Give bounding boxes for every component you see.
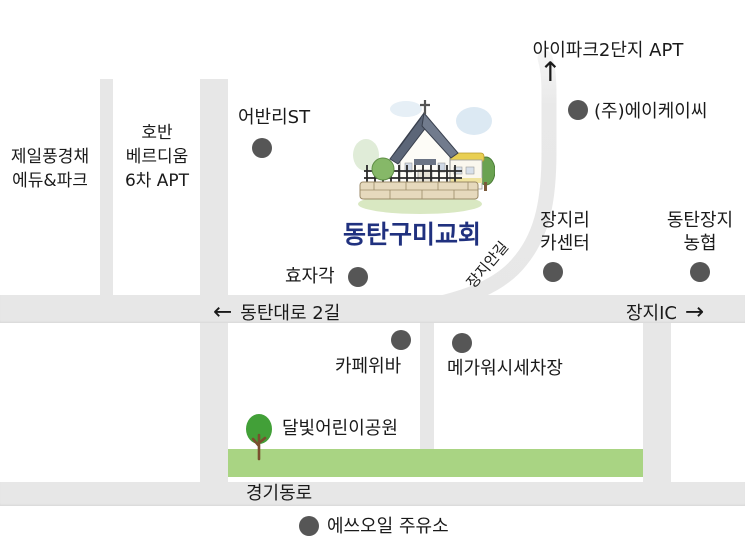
place-label-jeilpunggyeongchae: 제일풍경채 에듀&파크 bbox=[0, 145, 100, 193]
place-label-line: 카센터 bbox=[528, 232, 602, 255]
place-dot-dongtanjangji-nonghyup bbox=[690, 262, 710, 282]
place-label-dongtanjangji-nonghyup: 동탄장지 농협 bbox=[660, 209, 740, 255]
road-label-text: 장지IC bbox=[626, 299, 677, 325]
left-arrow-icon: ← bbox=[213, 303, 232, 321]
park-tree-icon bbox=[244, 413, 274, 461]
place-dot-soil-station bbox=[299, 516, 319, 536]
place-label-megawash: 메가워시세차장 bbox=[447, 358, 563, 380]
location-map: 제일풍경채 에듀&파크 호반 베르디움 6차 APT 어반리ST 아이파크2단지… bbox=[0, 0, 745, 548]
place-label-line: 장지리 bbox=[528, 209, 602, 232]
place-label-line: 호반 bbox=[112, 121, 202, 145]
place-label-moonlight-park: 달빛어린이공원 bbox=[282, 418, 398, 440]
place-label-line: 6차 APT bbox=[112, 169, 202, 193]
park-green-strip bbox=[228, 449, 643, 477]
place-dot-akc bbox=[568, 100, 588, 120]
right-arrow-icon: → bbox=[685, 303, 704, 321]
place-dot-cafe-wiba bbox=[391, 330, 411, 350]
place-dot-hyojagak bbox=[348, 267, 368, 287]
place-label-line: 베르디움 bbox=[112, 145, 202, 169]
place-label-akc: (주)에이케이씨 bbox=[594, 101, 707, 123]
place-label-line: 제일풍경채 bbox=[0, 145, 100, 169]
road-label-jangji-ic: 장지IC → bbox=[626, 299, 704, 325]
place-dot-urbanli-st bbox=[252, 138, 272, 158]
place-label-urbanli-st: 어반리ST bbox=[238, 107, 310, 129]
place-label-line: 농협 bbox=[660, 232, 740, 255]
road-label-gyeonggidongro: 경기동로 bbox=[246, 483, 312, 505]
up-arrow-icon: ↑ bbox=[539, 57, 562, 88]
place-dot-jangjiri-carcenter bbox=[543, 262, 563, 282]
road-label-dongtandaero: ← 동탄대로 2길 bbox=[213, 299, 340, 325]
place-label-line: 에듀&파크 bbox=[0, 169, 100, 193]
place-label-line: 동탄장지 bbox=[660, 209, 740, 232]
place-dot-megawash bbox=[452, 333, 472, 353]
place-label-hyojagak: 효자각 bbox=[285, 266, 335, 288]
church-illustration bbox=[350, 97, 495, 217]
church-name-label: 동탄구미교회 bbox=[337, 215, 487, 251]
place-label-cafe-wiba: 카페위바 bbox=[335, 356, 401, 378]
place-label-soil-station: 에쓰오일 주유소 bbox=[327, 516, 449, 538]
road-label-text: 동탄대로 2길 bbox=[240, 299, 340, 325]
place-label-hoban-apt: 호반 베르디움 6차 APT bbox=[112, 121, 202, 193]
place-label-jangjiri-carcenter: 장지리 카센터 bbox=[528, 209, 602, 255]
